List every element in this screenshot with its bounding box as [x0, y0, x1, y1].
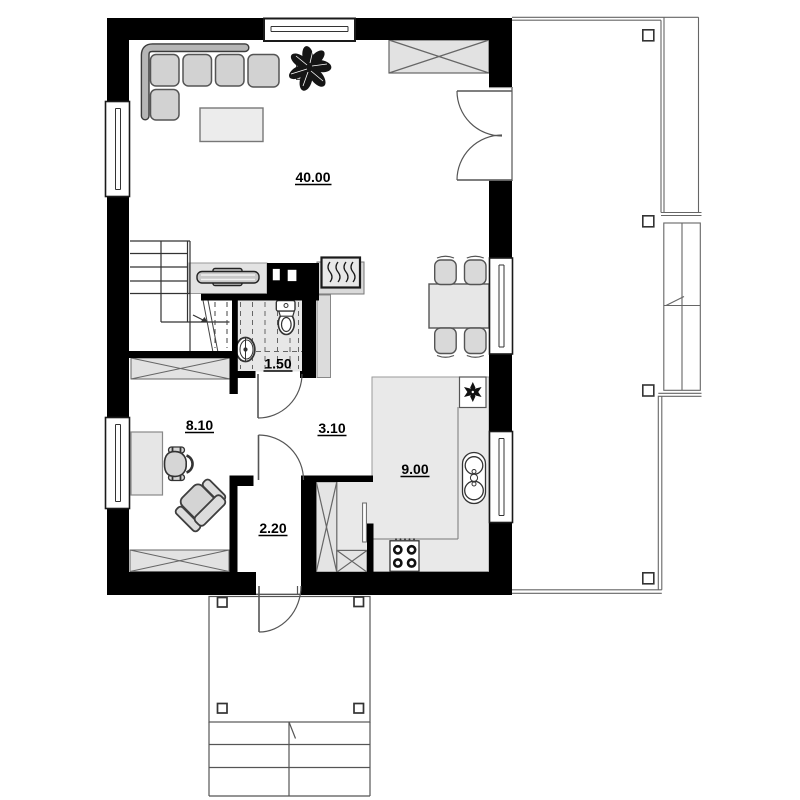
svg-text:8.10: 8.10	[186, 417, 213, 433]
svg-text:9.00: 9.00	[401, 461, 428, 477]
svg-text:3.10: 3.10	[318, 420, 345, 436]
svg-text:1.50: 1.50	[264, 356, 291, 372]
svg-text:2.20: 2.20	[259, 520, 286, 536]
svg-text:40.00: 40.00	[295, 169, 330, 185]
